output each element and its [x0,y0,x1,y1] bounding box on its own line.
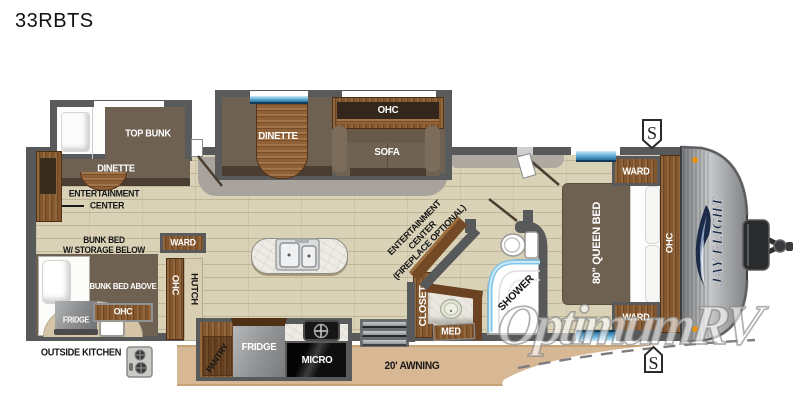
svg-text:S: S [647,123,657,143]
